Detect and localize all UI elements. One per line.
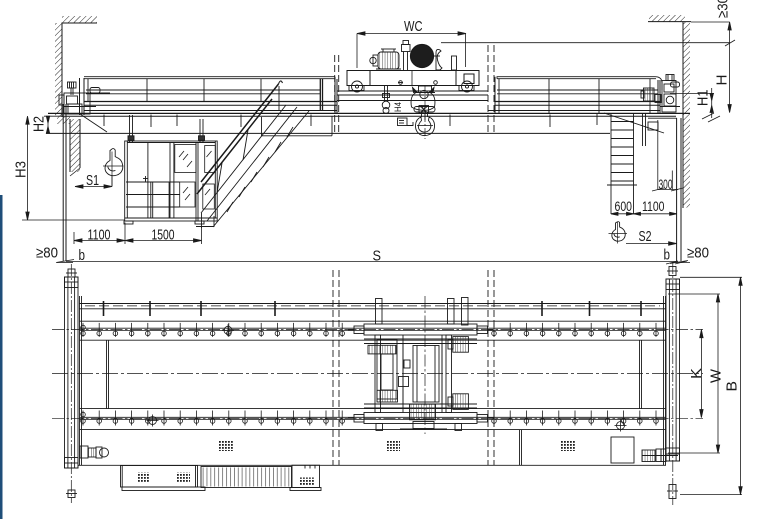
svg-text:H3: H3 (13, 161, 30, 178)
svg-text:≥80: ≥80 (687, 245, 709, 262)
svg-text:H4: H4 (393, 102, 403, 112)
svg-text:WC: WC (404, 18, 423, 35)
svg-text:≥30: ≥30 (715, 0, 732, 18)
svg-text:W: W (708, 368, 725, 383)
svg-text:S2: S2 (639, 228, 652, 245)
svg-text:S: S (373, 248, 382, 265)
svg-text:≥80: ≥80 (36, 245, 58, 262)
svg-text:B: B (724, 381, 741, 392)
svg-text:1100: 1100 (642, 198, 665, 214)
svg-text:H: H (714, 75, 731, 86)
svg-text:b: b (664, 247, 671, 264)
svg-text:300: 300 (659, 176, 673, 192)
svg-text:H1: H1 (695, 90, 712, 107)
svg-text:1500: 1500 (152, 227, 175, 244)
svg-text:S1: S1 (86, 172, 99, 189)
svg-text:K: K (688, 368, 705, 379)
svg-text:600: 600 (615, 198, 633, 214)
svg-text:H2: H2 (31, 116, 48, 132)
svg-text:1100: 1100 (88, 227, 111, 244)
